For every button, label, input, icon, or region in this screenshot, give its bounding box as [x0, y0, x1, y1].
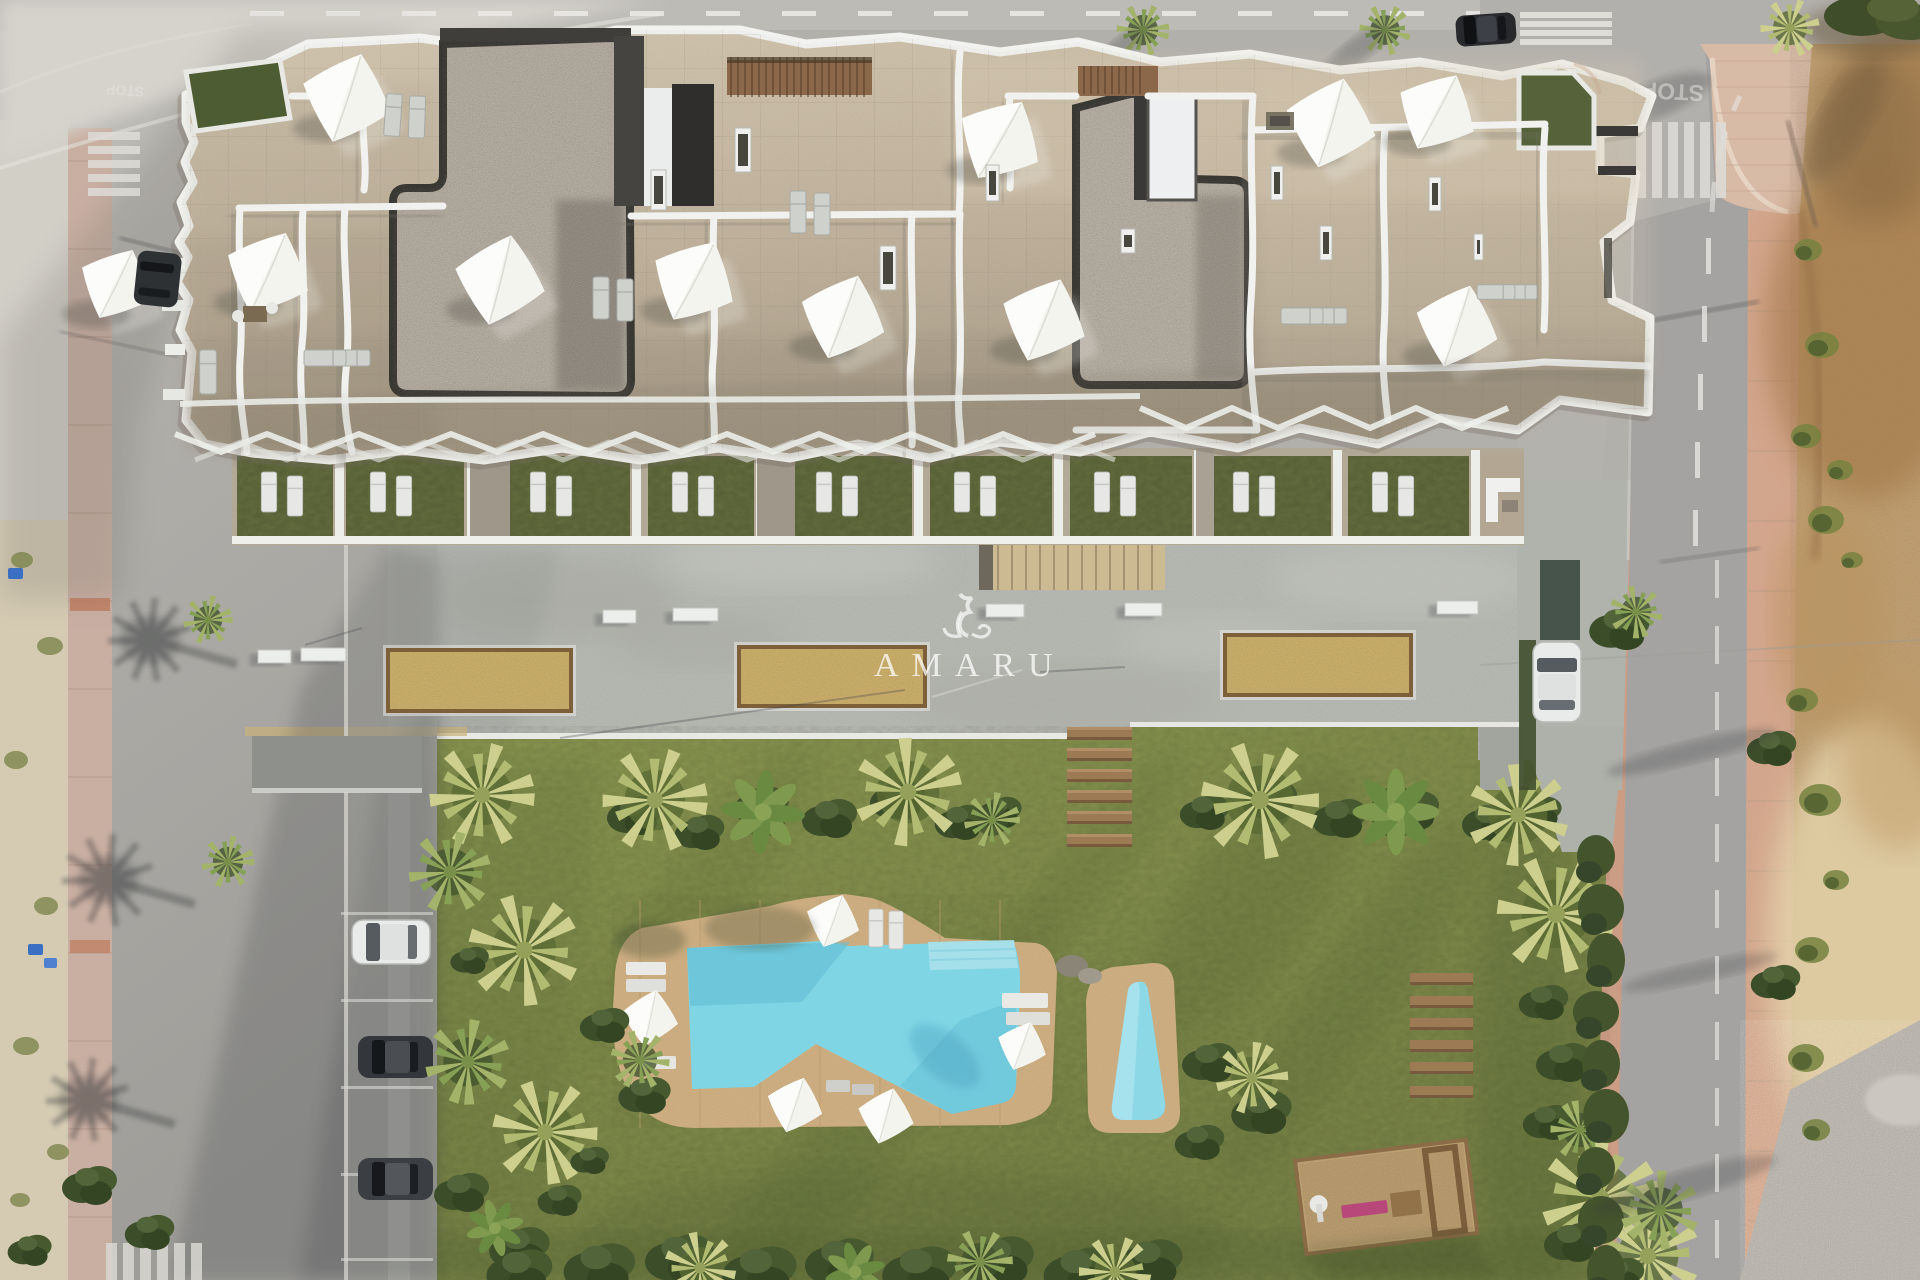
- svg-text:STOP: STOP: [106, 81, 145, 100]
- svg-text:AMARU: AMARU: [874, 647, 1066, 684]
